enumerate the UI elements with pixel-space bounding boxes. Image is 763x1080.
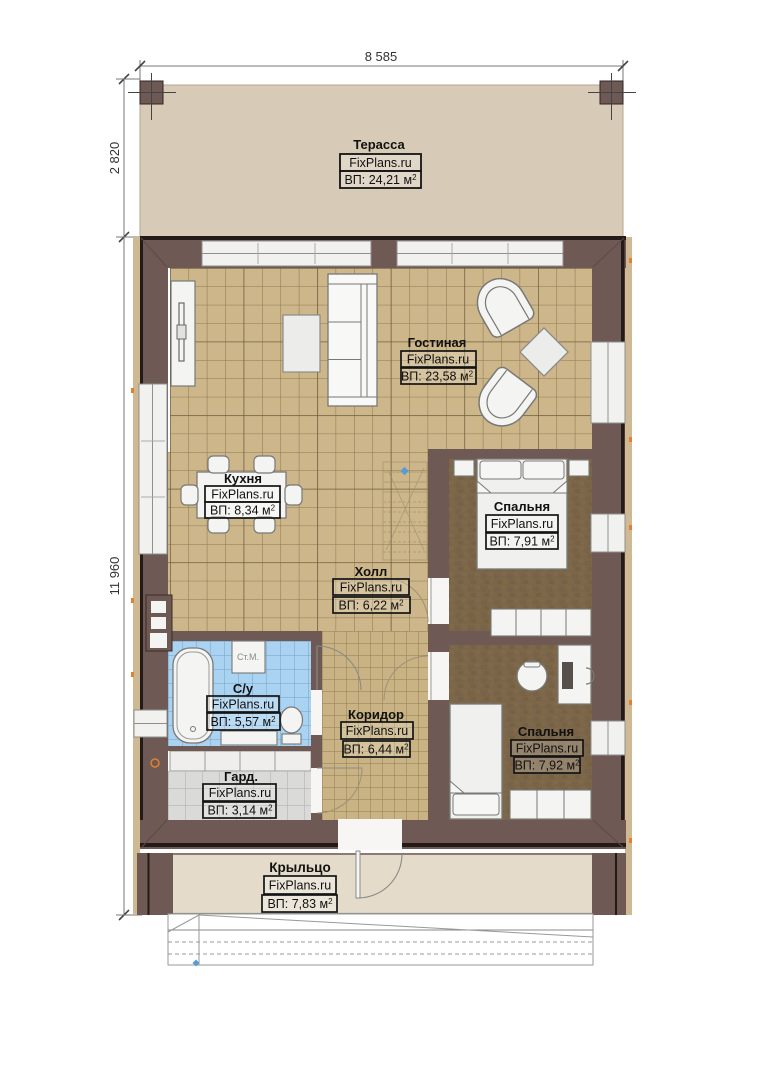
svg-text:FixPlans.ru: FixPlans.ru	[491, 517, 554, 531]
svg-text:ВП: 7,92 м2: ВП: 7,92 м2	[514, 759, 580, 773]
svg-text:Ст.М.: Ст.М.	[237, 652, 259, 662]
svg-text:FixPlans.ru: FixPlans.ru	[516, 742, 579, 756]
svg-text:FixPlans.ru: FixPlans.ru	[407, 353, 470, 367]
svg-text:FixPlans.ru: FixPlans.ru	[211, 488, 274, 502]
svg-text:ВП: 6,22 м2: ВП: 6,22 м2	[338, 599, 404, 613]
svg-text:FixPlans.ru: FixPlans.ru	[212, 698, 275, 712]
svg-text:2 820: 2 820	[107, 142, 122, 175]
svg-text:С/у: С/у	[233, 681, 254, 696]
svg-text:Терасса: Терасса	[353, 137, 405, 152]
svg-text:Коридор: Коридор	[348, 707, 404, 722]
svg-text:Спальня: Спальня	[518, 724, 574, 739]
svg-text:Крыльцо: Крыльцо	[269, 860, 330, 875]
svg-text:ВП: 5,57 м2: ВП: 5,57 м2	[210, 715, 276, 729]
svg-text:11 960: 11 960	[107, 557, 122, 596]
svg-text:Гард.: Гард.	[224, 769, 258, 784]
svg-text:ВП: 7,91 м2: ВП: 7,91 м2	[489, 535, 555, 549]
svg-text:ВП: 8,34 м2: ВП: 8,34 м2	[210, 504, 276, 518]
svg-text:ВП: 7,83 м2: ВП: 7,83 м2	[267, 897, 333, 911]
svg-text:FixPlans.ru: FixPlans.ru	[209, 786, 272, 800]
svg-text:Гостиная: Гостиная	[408, 335, 467, 350]
svg-text:Холл: Холл	[355, 564, 388, 579]
svg-text:FixPlans.ru: FixPlans.ru	[269, 879, 332, 893]
svg-text:FixPlans.ru: FixPlans.ru	[349, 156, 412, 170]
svg-text:ВП: 6,44 м2: ВП: 6,44 м2	[343, 743, 409, 757]
svg-text:ВП: 23,58 м2: ВП: 23,58 м2	[401, 370, 474, 384]
svg-text:FixPlans.ru: FixPlans.ru	[340, 581, 403, 595]
svg-text:Спальня: Спальня	[494, 499, 550, 514]
svg-text:ВП: 24,21 м2: ВП: 24,21 м2	[344, 173, 417, 187]
svg-text:Кухня: Кухня	[224, 471, 262, 486]
svg-text:ВП: 3,14 м2: ВП: 3,14 м2	[207, 804, 273, 818]
svg-text:8 585: 8 585	[365, 49, 398, 64]
svg-text:FixPlans.ru: FixPlans.ru	[346, 724, 409, 738]
